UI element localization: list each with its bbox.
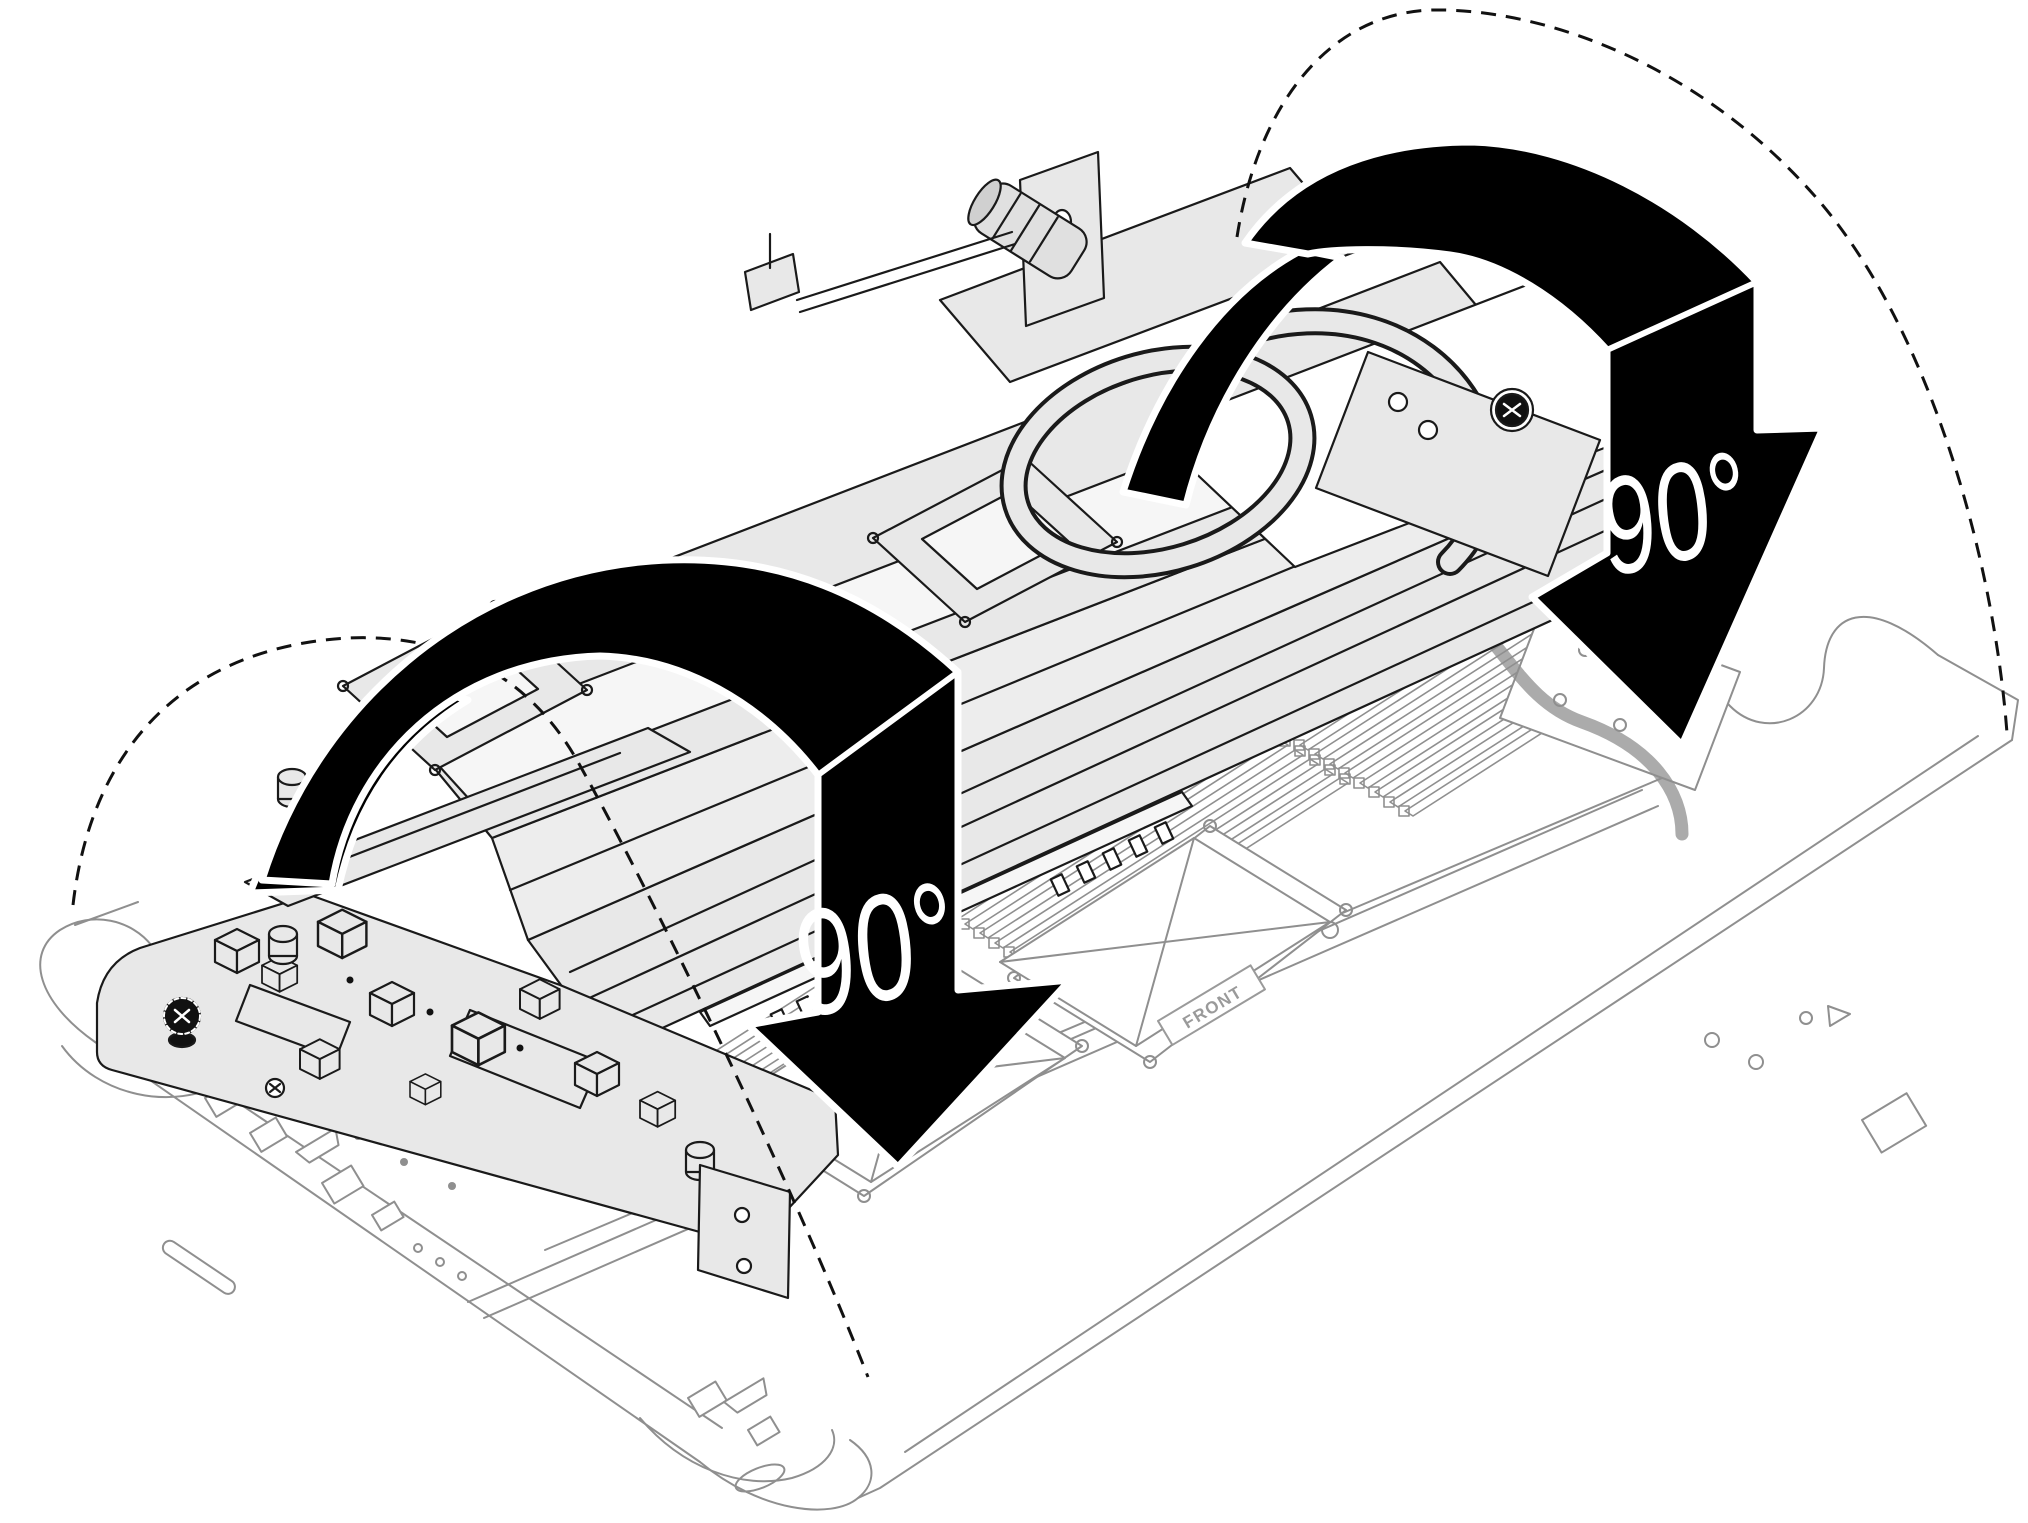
rotation-diagram-canvas: FRONT xyxy=(0,0,2028,1523)
technical-illustration: FRONT xyxy=(0,0,2028,1523)
vga-connector xyxy=(296,1128,344,1165)
tray-back-left-edge xyxy=(75,902,138,925)
tray-corner-slot xyxy=(732,1459,788,1497)
board-screw xyxy=(266,1079,284,1097)
screw xyxy=(1419,421,1437,439)
screw xyxy=(735,1208,749,1222)
tray-triangle-mark xyxy=(1828,1006,1850,1026)
tray-front-corner-wing-inner xyxy=(640,1418,834,1481)
tray-cutout xyxy=(1862,1093,1926,1152)
vga-connector xyxy=(724,1378,772,1415)
support-bracket xyxy=(745,254,799,310)
screw xyxy=(737,1259,751,1273)
carrier-thumbscrew xyxy=(164,998,200,1047)
tray-hole xyxy=(1749,1055,1763,1069)
tray-hole xyxy=(1705,1033,1719,1047)
thumbscrew xyxy=(1491,389,1533,431)
tray-hole xyxy=(1800,1012,1812,1024)
screw xyxy=(1389,393,1407,411)
